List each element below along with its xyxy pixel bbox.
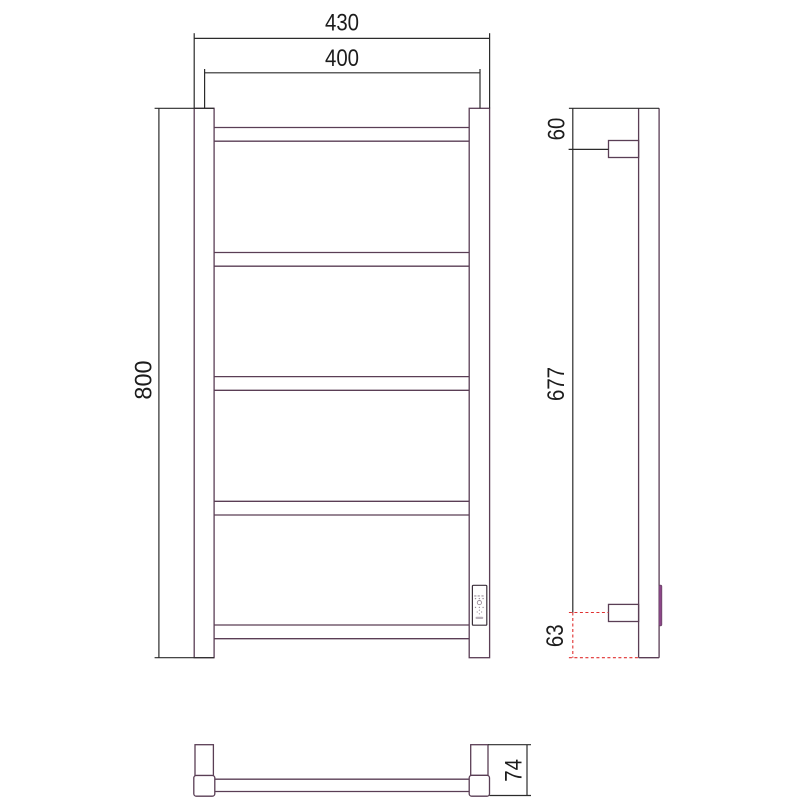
svg-text:800: 800 [130, 360, 157, 399]
svg-text:60: 60 [543, 118, 570, 141]
svg-text:430: 430 [325, 9, 359, 36]
svg-text:74: 74 [500, 759, 527, 782]
svg-text:677: 677 [543, 367, 570, 401]
svg-text:63: 63 [541, 624, 568, 647]
svg-text:400: 400 [325, 44, 359, 71]
